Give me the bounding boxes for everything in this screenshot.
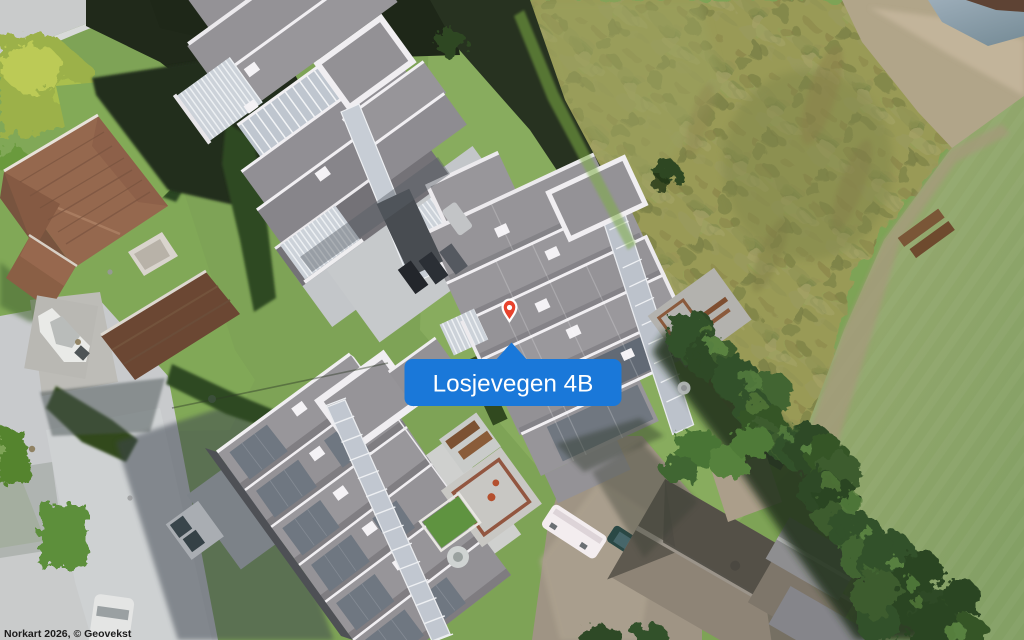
svg-text:Norkart 2026, © Geovekst: Norkart 2026, © Geovekst [4,628,132,640]
svg-text:Losjevegen 4B: Losjevegen 4B [433,371,594,398]
